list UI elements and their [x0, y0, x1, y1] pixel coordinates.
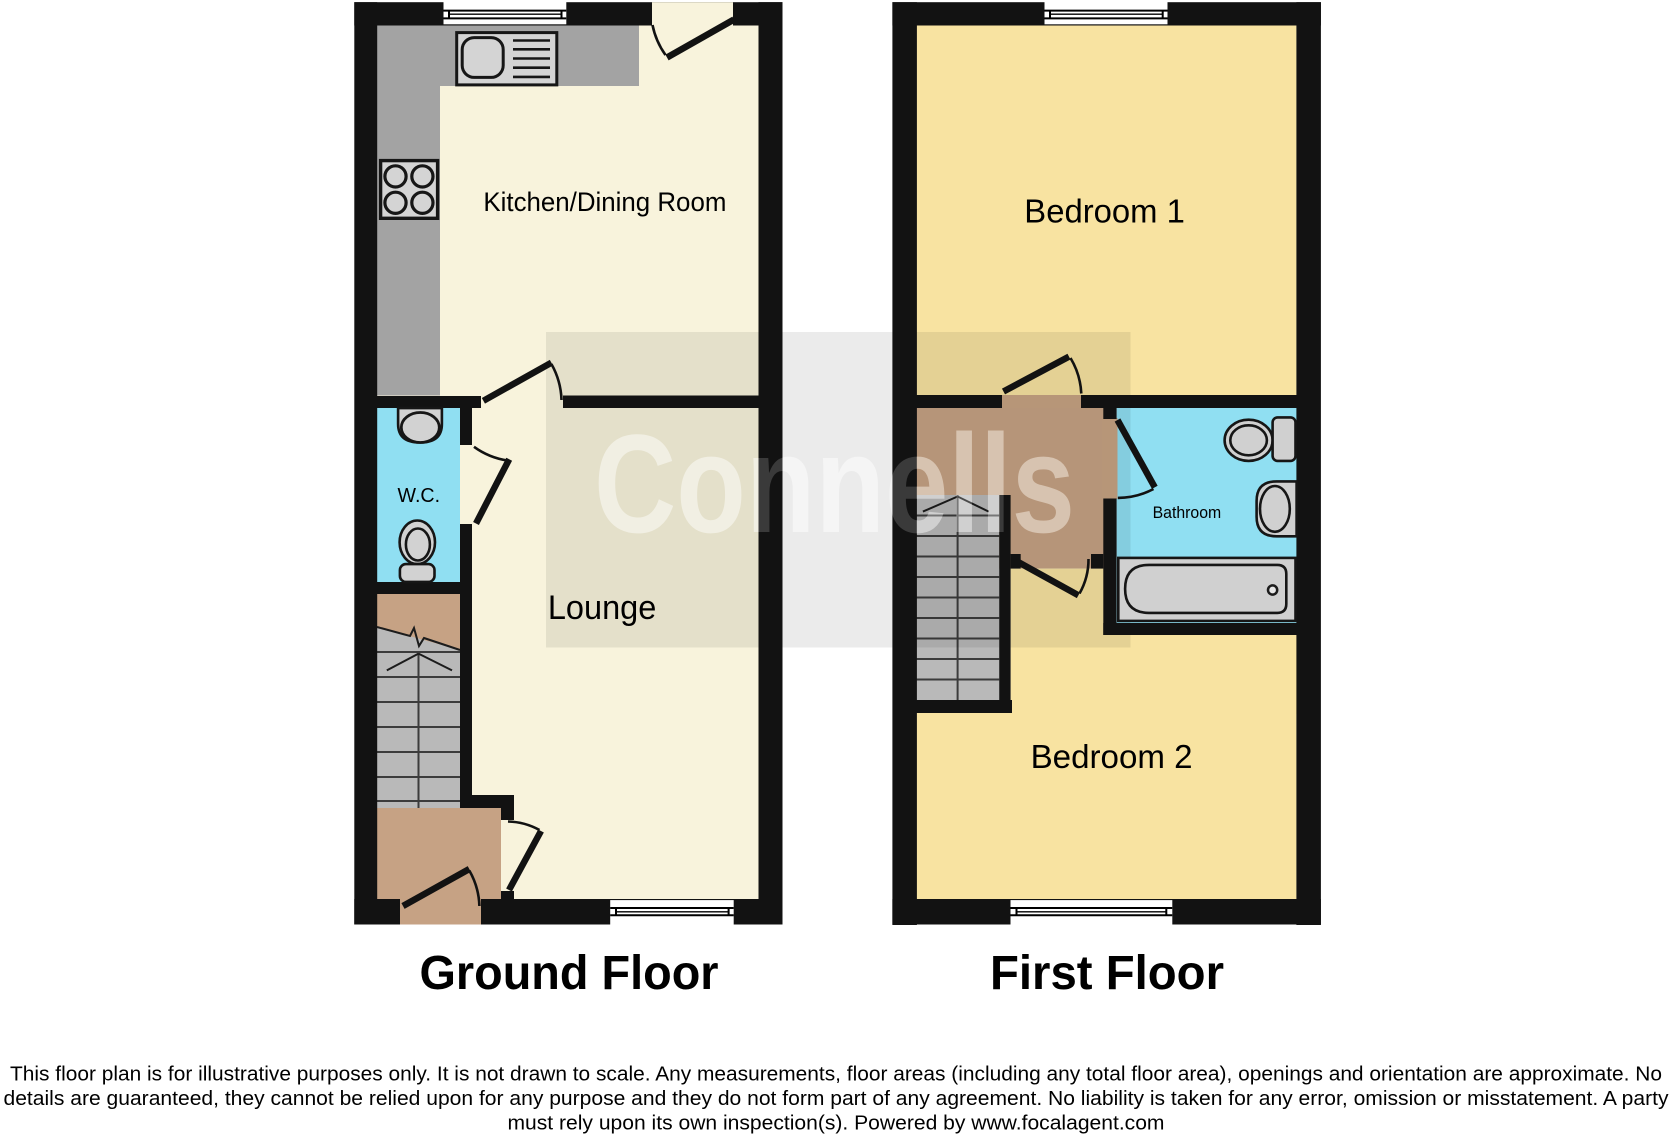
svg-text:must rely upon its own inspect: must rely upon its own inspection(s). Po… [508, 1113, 1165, 1135]
svg-text:details are guaranteed, they c: details are guaranteed, they cannot be r… [4, 1088, 1669, 1110]
svg-text:W.C.: W.C. [398, 485, 441, 507]
svg-text:Connells: Connells [594, 405, 1075, 562]
svg-text:Lounge: Lounge [548, 589, 657, 627]
svg-text:First Floor: First Floor [990, 947, 1224, 1000]
svg-text:Ground Floor: Ground Floor [420, 947, 719, 1000]
svg-text:Bathroom: Bathroom [1153, 503, 1222, 522]
svg-text:Bedroom 1: Bedroom 1 [1024, 193, 1185, 230]
svg-text:Kitchen/Dining Room: Kitchen/Dining Room [483, 187, 726, 217]
svg-text:Bedroom 2: Bedroom 2 [1031, 738, 1193, 775]
svg-text:This floor plan is for illustr: This floor plan is for illustrative purp… [10, 1064, 1662, 1086]
